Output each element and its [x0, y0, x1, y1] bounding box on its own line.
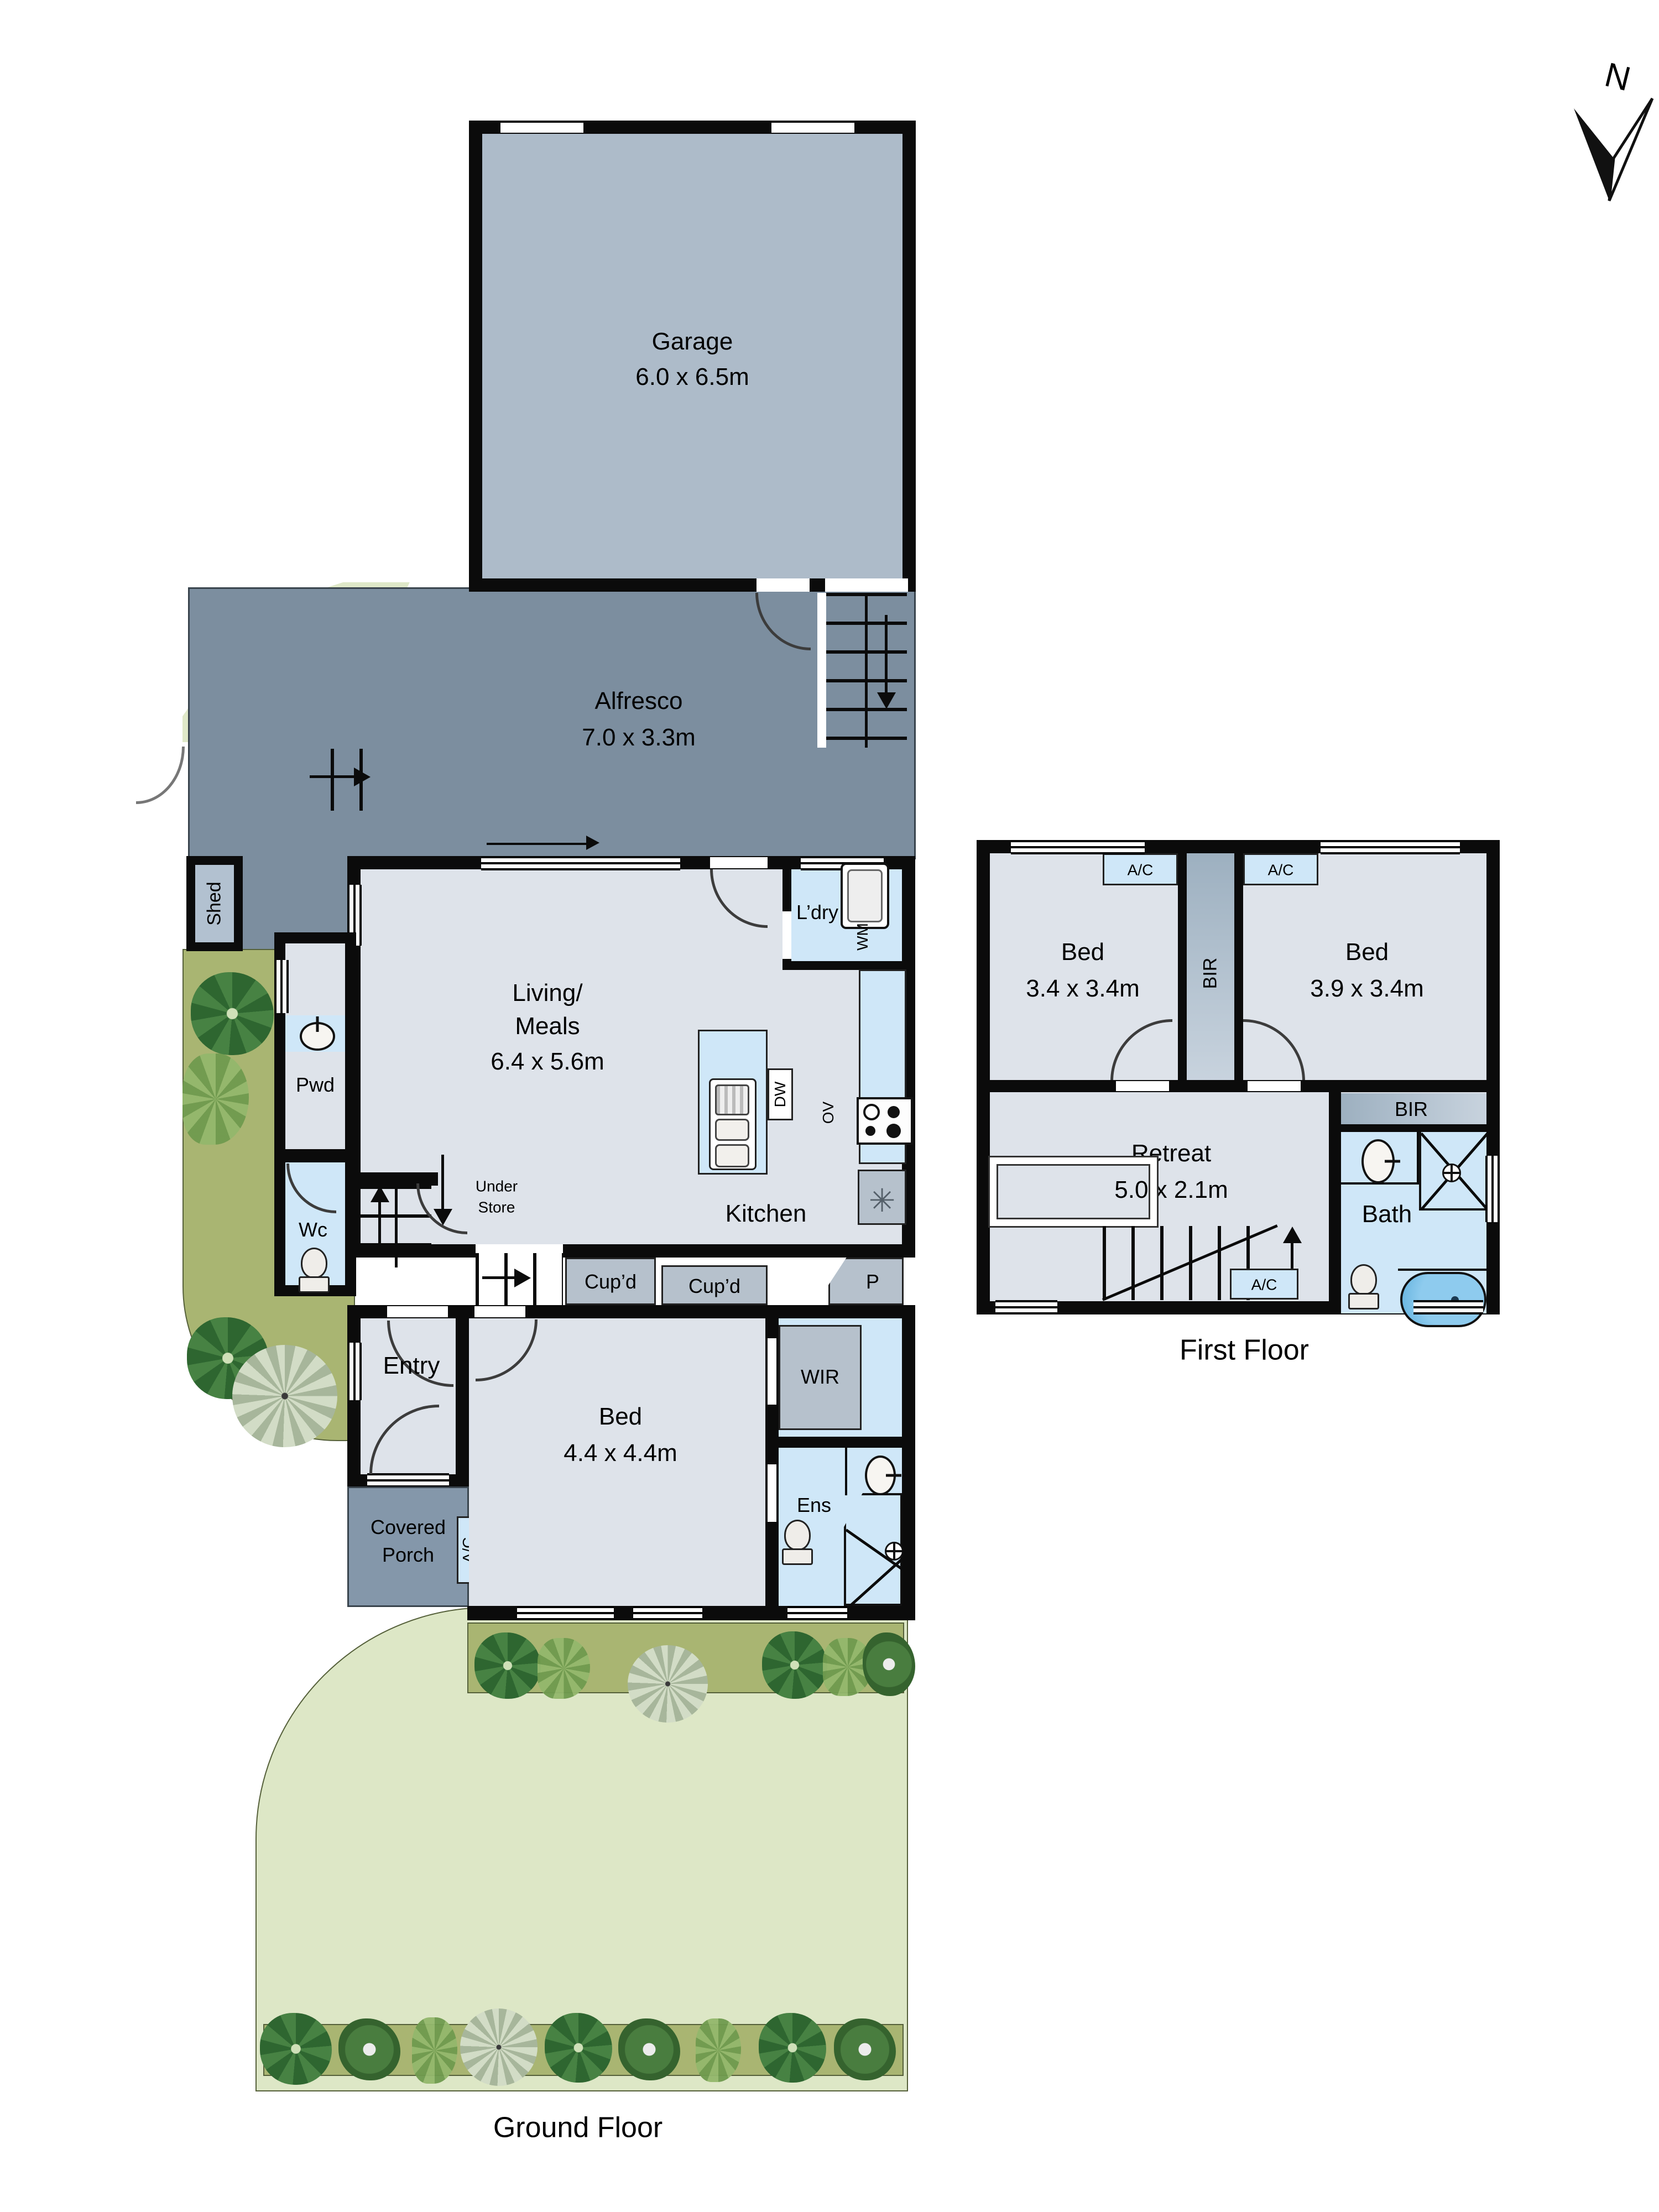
bed-door-opening — [474, 1306, 525, 1317]
sink-drainer — [715, 1084, 749, 1115]
bed-dims: 4.4 x 4.4m — [564, 1440, 677, 1467]
understore-label-1: Under — [476, 1178, 518, 1196]
shed-label: Shed — [204, 881, 226, 925]
entry-label: Entry — [383, 1353, 440, 1379]
bathtub-icon — [1400, 1272, 1486, 1327]
bedright-label: Bed — [1345, 939, 1389, 966]
laundry-door-opening — [782, 911, 791, 959]
retreat-side-window — [1485, 1156, 1500, 1222]
plant-rosette-icon — [759, 2013, 826, 2083]
bed-label: Bed — [599, 1404, 642, 1430]
wir-label: WIR — [801, 1366, 839, 1388]
living-dims: 6.4 x 5.6m — [491, 1048, 604, 1075]
wall — [902, 1305, 915, 1620]
wall — [1178, 853, 1187, 1081]
fridge-symbol: ✳ — [869, 1183, 896, 1219]
garage-label: Garage — [652, 328, 733, 355]
stair-arrow-line — [885, 615, 888, 692]
ens-label: Ens — [797, 1494, 831, 1516]
wc-toilet-icon — [299, 1248, 330, 1294]
plant-rosette-icon — [762, 1631, 827, 1699]
shower-rose-icon — [885, 1542, 904, 1561]
ens-basin-icon — [865, 1455, 896, 1495]
counter-edge — [845, 1448, 847, 1495]
garage-stair-opening — [825, 578, 908, 592]
retreat-window — [995, 1300, 1057, 1314]
bedleft-ac-label: A/C — [1128, 862, 1154, 879]
wall — [1234, 853, 1243, 1081]
living-door-opening — [710, 857, 768, 868]
plant-rosette-icon — [474, 1632, 541, 1699]
ens-window — [787, 1606, 847, 1620]
understore-arrow-down-icon — [434, 1209, 452, 1225]
shower-fold-line — [846, 1528, 933, 1591]
plant-rosette-icon — [260, 2013, 332, 2085]
understore-label-2: Store — [478, 1199, 515, 1217]
ground-floor-caption: Ground Floor — [493, 2112, 662, 2143]
stair-arrow-right-icon — [514, 1269, 531, 1287]
living-sliding-door — [481, 856, 680, 870]
laundry-trough-icon — [841, 863, 889, 929]
wir-door-opening — [768, 1338, 776, 1405]
wall — [990, 1080, 1486, 1092]
stair-rail — [865, 593, 868, 748]
bath-basin-icon — [1361, 1139, 1395, 1183]
garage-dims: 6.0 x 6.5m — [635, 364, 749, 390]
stair-rail — [395, 1186, 398, 1267]
gate-door-arc — [136, 747, 185, 804]
alfresco-dims: 7.0 x 3.3m — [582, 724, 695, 751]
entry-window — [347, 1343, 362, 1400]
tub-edge — [1398, 1269, 1486, 1271]
pwd-window — [274, 960, 289, 1013]
stair-void-balustrade — [990, 1157, 1157, 1226]
bath-toilet-icon — [1348, 1264, 1379, 1311]
bedright-door-opening — [1248, 1081, 1301, 1091]
stair-arrow-down-icon — [877, 692, 896, 709]
living-label-2: Meals — [515, 1013, 580, 1040]
floorplan-canvas: Garage 6.0 x 6.5m Alfresco 7.0 x 3.3m Sh… — [0, 0, 1659, 2212]
stair-ac-label: A/C — [1251, 1277, 1277, 1294]
wall — [1329, 1092, 1341, 1313]
sink-bowl — [715, 1144, 749, 1167]
washing-machine-label: WM — [854, 923, 872, 951]
plant-palm-icon — [628, 1645, 708, 1723]
kitchen-label: Kitchen — [726, 1201, 807, 1227]
alfresco-label: Alfresco — [595, 688, 683, 714]
ens-door-opening — [768, 1464, 776, 1522]
bir-bath-label: BIR — [1395, 1098, 1428, 1120]
wall — [1341, 1124, 1486, 1132]
plant-palm-icon — [460, 2008, 538, 2086]
steps-arrow-right-icon — [354, 768, 371, 786]
stair-arrow-up-icon — [1283, 1227, 1302, 1243]
bedleft-dims: 3.4 x 3.4m — [1026, 975, 1139, 1002]
bath-label: Bath — [1362, 1201, 1412, 1228]
dishwasher-label: DW — [771, 1082, 789, 1108]
entry-opening — [387, 1306, 448, 1317]
laundry-label: L’dry — [796, 901, 838, 924]
understore-arrow-line — [441, 1155, 444, 1210]
cooktop-icon — [857, 1097, 913, 1145]
living-label-1: Living/ — [512, 980, 582, 1006]
steps-arrow-line — [310, 775, 354, 778]
cupboard-mid-label: Cup’d — [688, 1275, 740, 1297]
pwd-label: Pwd — [296, 1074, 335, 1096]
bed-window — [633, 1606, 702, 1620]
plant-palm-icon — [232, 1345, 337, 1447]
stair-arrow-line — [482, 1276, 515, 1279]
room-garage — [469, 121, 916, 592]
bedright-ac-label: A/C — [1268, 862, 1294, 879]
bir-vertical-label: BIR — [1200, 958, 1222, 989]
wall — [779, 1437, 902, 1448]
stair-arrow-up-icon — [371, 1186, 389, 1202]
pantry-label: P — [866, 1271, 879, 1293]
bedleft-door-opening — [1116, 1081, 1169, 1091]
oven-label: OV — [820, 1102, 837, 1124]
bedleft-window — [1011, 840, 1145, 854]
north-arrow-icon — [1569, 93, 1658, 204]
slider-arrow-icon — [586, 836, 599, 850]
cupboard-left-label: Cup’d — [585, 1271, 637, 1293]
bedleft-label: Bed — [1061, 939, 1104, 966]
plant-rosette-icon — [191, 972, 274, 1055]
wc-label: Wc — [299, 1219, 327, 1241]
wall — [274, 1149, 356, 1162]
bedright-window — [1321, 840, 1460, 854]
kitchen-sink — [709, 1078, 757, 1170]
bedright-dims: 3.9 x 3.4m — [1310, 975, 1423, 1002]
wall — [467, 1305, 915, 1318]
garage-door-opening — [757, 578, 810, 592]
stair-arrow-line — [378, 1196, 381, 1256]
porch-label-1: Covered — [371, 1516, 446, 1538]
wall — [456, 1305, 469, 1488]
porch-label-2: Porch — [382, 1544, 434, 1566]
slider-arrow-line — [487, 843, 586, 845]
stair-side-wall — [817, 593, 826, 748]
front-door-sill — [367, 1473, 449, 1488]
ens-toilet-icon — [782, 1520, 813, 1566]
shower-rose-icon — [1442, 1164, 1461, 1182]
garage-wall-gap — [500, 123, 583, 133]
first-floor-caption: First Floor — [1180, 1334, 1309, 1366]
garage-wall-gap — [771, 123, 854, 133]
pwd-basin-icon — [300, 1022, 335, 1051]
bath-window — [1413, 1300, 1483, 1314]
bed-window — [517, 1606, 614, 1620]
north-label: N — [1601, 56, 1634, 99]
plant-rosette-icon — [545, 2013, 612, 2083]
sink-bowl — [715, 1119, 749, 1141]
